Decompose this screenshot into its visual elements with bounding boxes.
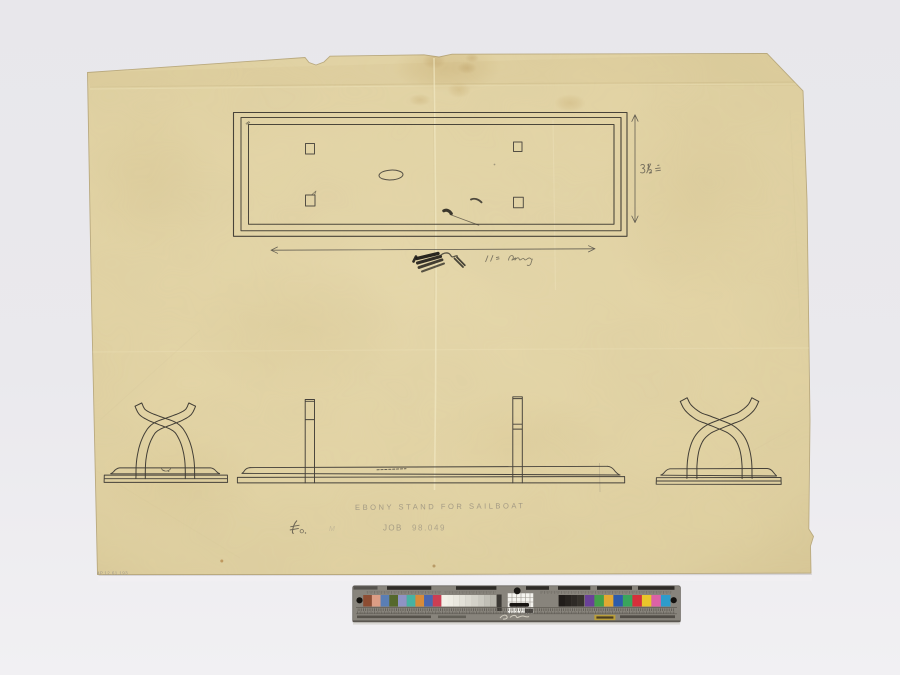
svg-text:JOB: JOB — [383, 524, 403, 533]
svg-text:M: M — [329, 526, 335, 533]
svg-text:EBONY STAND FOR SAILBOAT: EBONY STAND FOR SAILBOAT — [355, 501, 526, 512]
svg-text:98.049: 98.049 — [412, 524, 446, 533]
svg-text:4P.12.61.193: 4P.12.61.193 — [97, 571, 128, 576]
